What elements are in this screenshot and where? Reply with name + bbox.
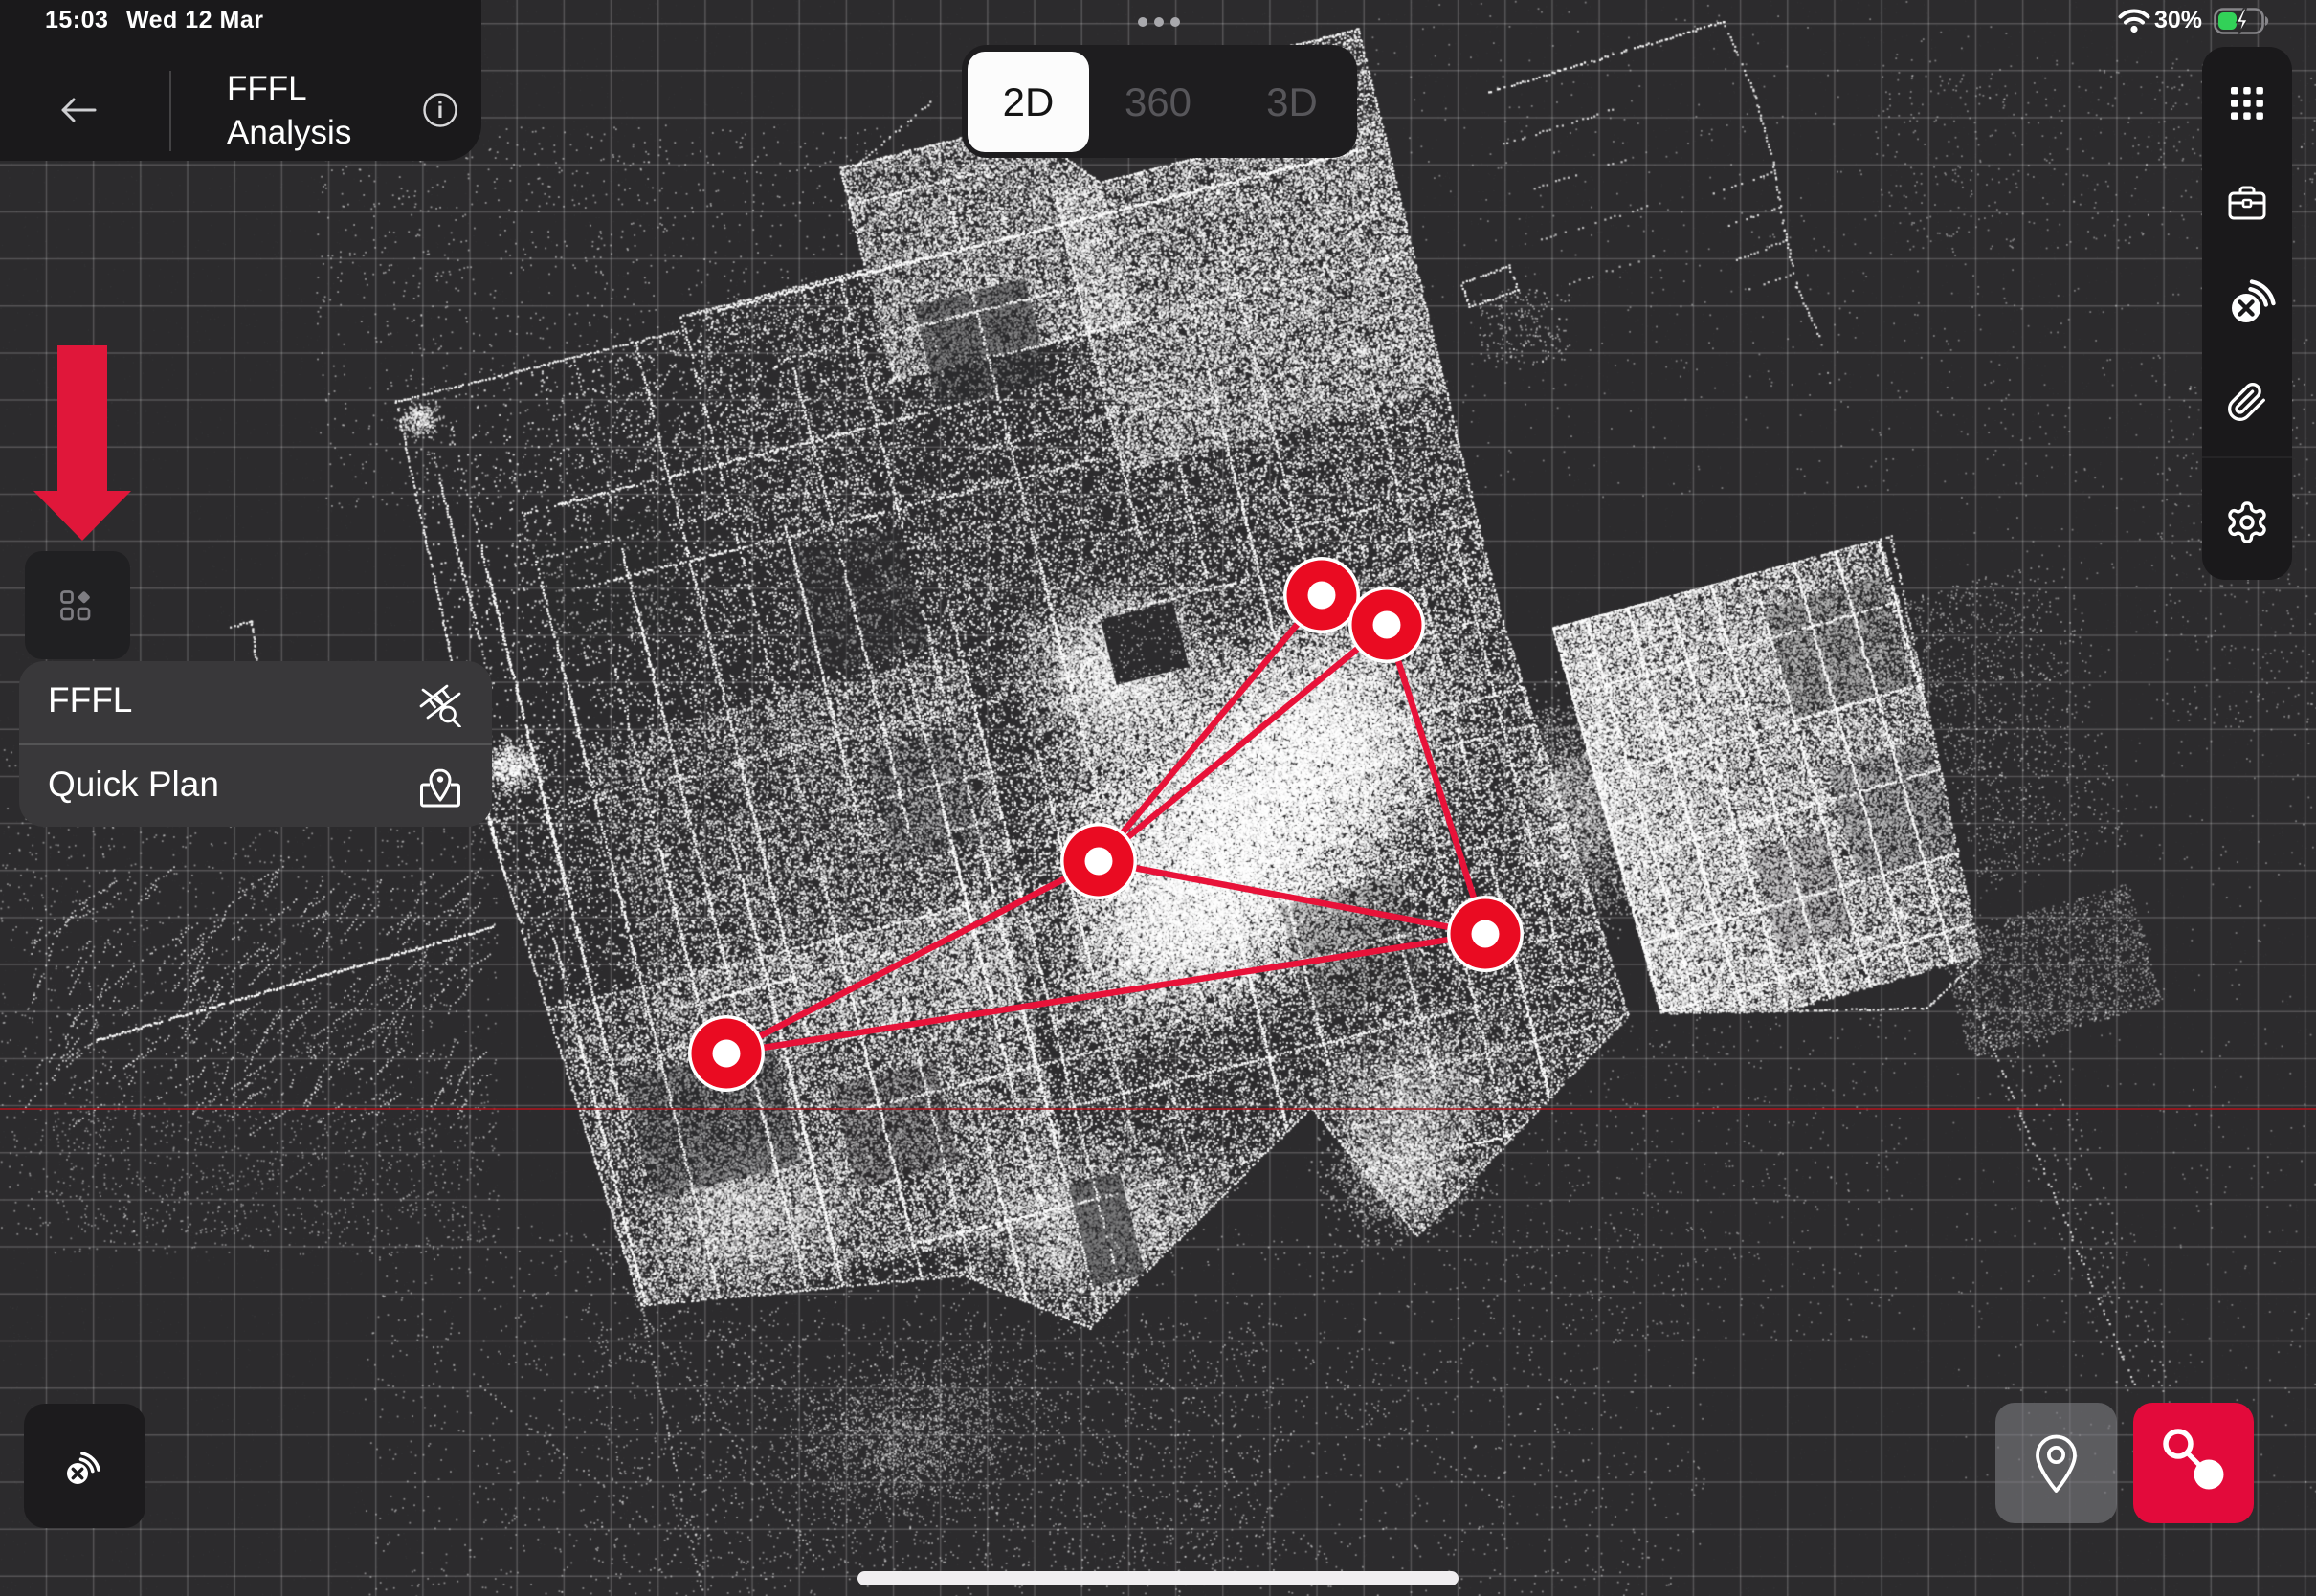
svg-text:i: i <box>437 98 443 122</box>
